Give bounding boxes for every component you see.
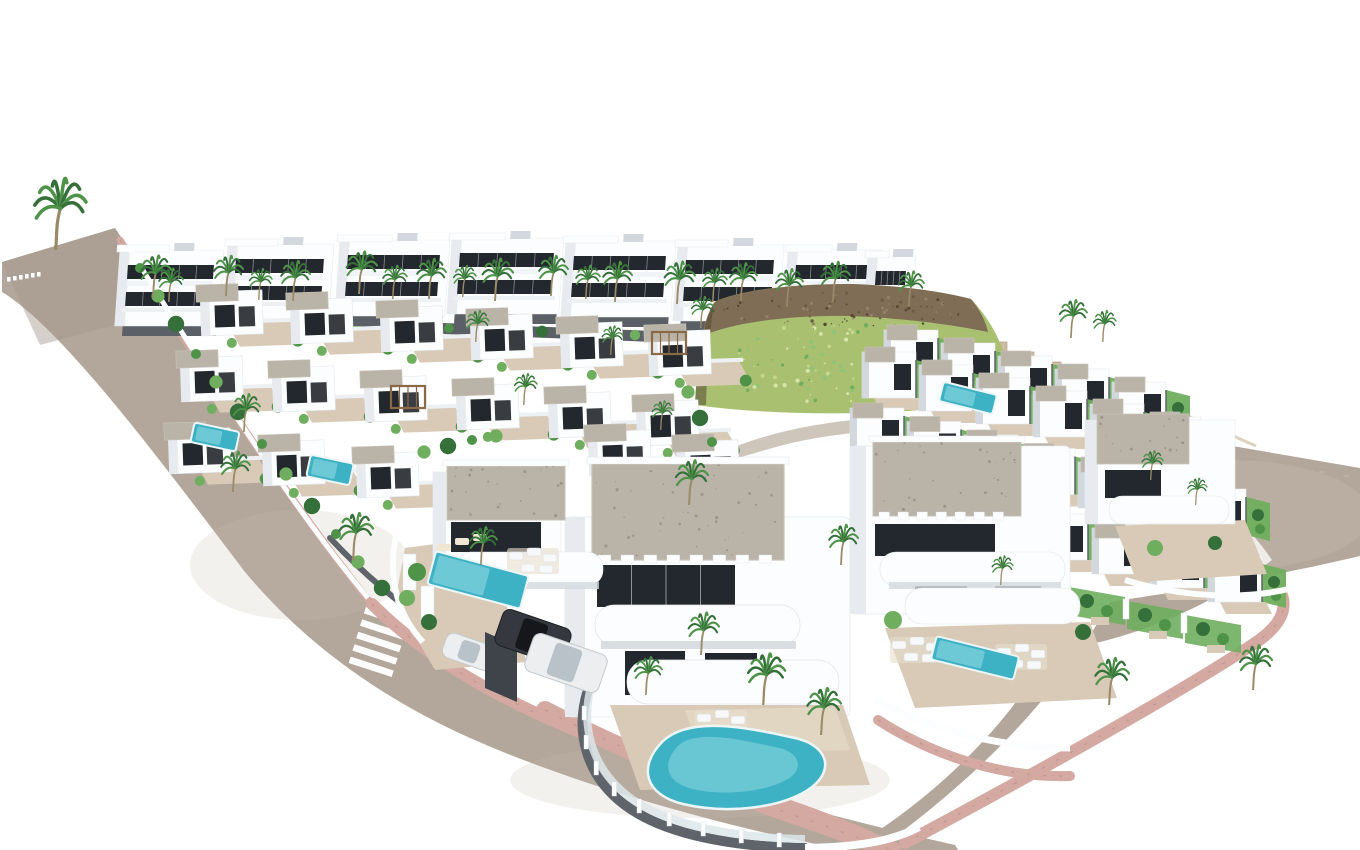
shrub: [630, 330, 640, 340]
shrub: [489, 429, 502, 442]
distant-object: [1332, 479, 1338, 482]
architectural-render: [0, 0, 1360, 850]
give-way-dash: [13, 276, 17, 281]
give-way-dash: [7, 277, 11, 282]
distant-object: [1344, 475, 1350, 478]
give-way-dash: [19, 275, 23, 280]
shrub: [536, 326, 548, 338]
shrub: [279, 467, 292, 480]
shrub: [681, 385, 694, 398]
shrub: [707, 437, 717, 447]
shrub: [191, 349, 201, 359]
shrub: [304, 498, 320, 514]
distant-object: [1319, 471, 1325, 474]
shrub: [417, 445, 430, 458]
give-way-dash: [31, 273, 35, 278]
shrub: [467, 435, 477, 445]
give-way-dash: [37, 272, 41, 277]
shrub: [257, 439, 267, 449]
shrub: [168, 316, 184, 332]
give-way-dash: [25, 274, 29, 279]
shrub: [209, 375, 222, 388]
shrub: [440, 438, 456, 454]
shrub: [444, 324, 453, 333]
shrub: [374, 580, 390, 596]
shrub: [692, 410, 708, 426]
render-canvas: [0, 0, 1360, 850]
